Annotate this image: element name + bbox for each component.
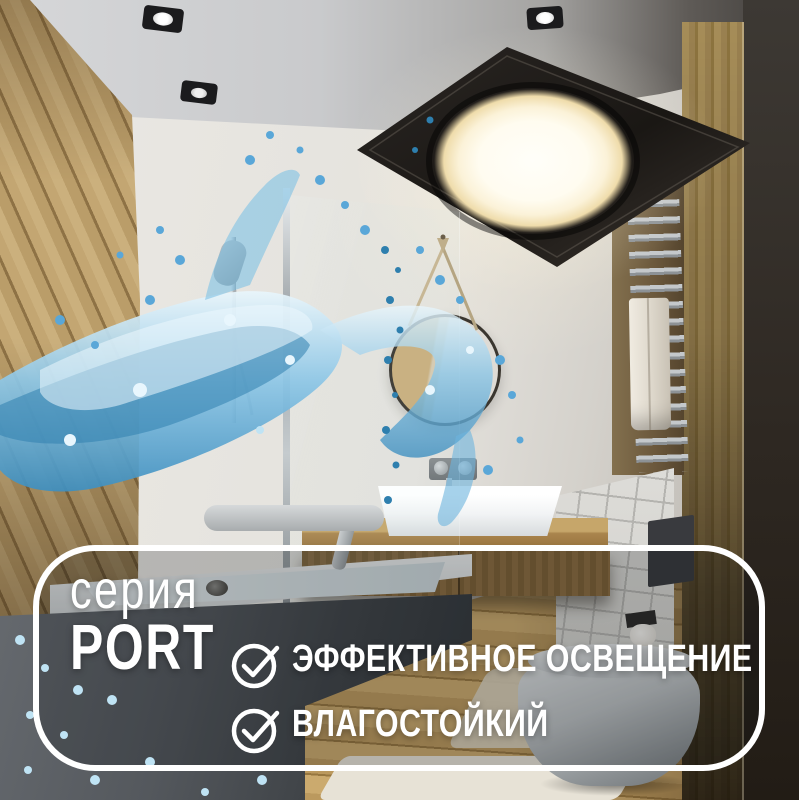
- check-circle-icon: [230, 703, 282, 755]
- grab-bar: [204, 505, 384, 531]
- feature-label-effective-lighting: ЭФФЕКТИВНОЕ ОСВЕЩЕНИЕ: [292, 639, 753, 679]
- product-marketing-image: серия PORT ЭФФЕКТИВНОЕ ОСВЕЩЕНИЕ ВЛАГОСТ…: [0, 0, 799, 800]
- recessed-spotlight-icon: [180, 80, 218, 105]
- recessed-spotlight-icon: [142, 5, 185, 34]
- faucet-knob: [458, 461, 472, 475]
- check-circle-icon: [230, 638, 282, 690]
- recessed-spotlight-icon: [526, 6, 563, 30]
- towel-fold-line: [647, 298, 651, 430]
- series-name: PORT: [70, 614, 215, 680]
- spotlight-bulb: [536, 11, 555, 24]
- towel: [629, 298, 671, 431]
- spotlight-bulb: [152, 11, 173, 26]
- feature-label-moisture-resistant: ВЛАГОСТОЙКИЙ: [292, 704, 549, 744]
- series-label: серия: [70, 562, 199, 618]
- spotlight-bulb: [190, 87, 207, 99]
